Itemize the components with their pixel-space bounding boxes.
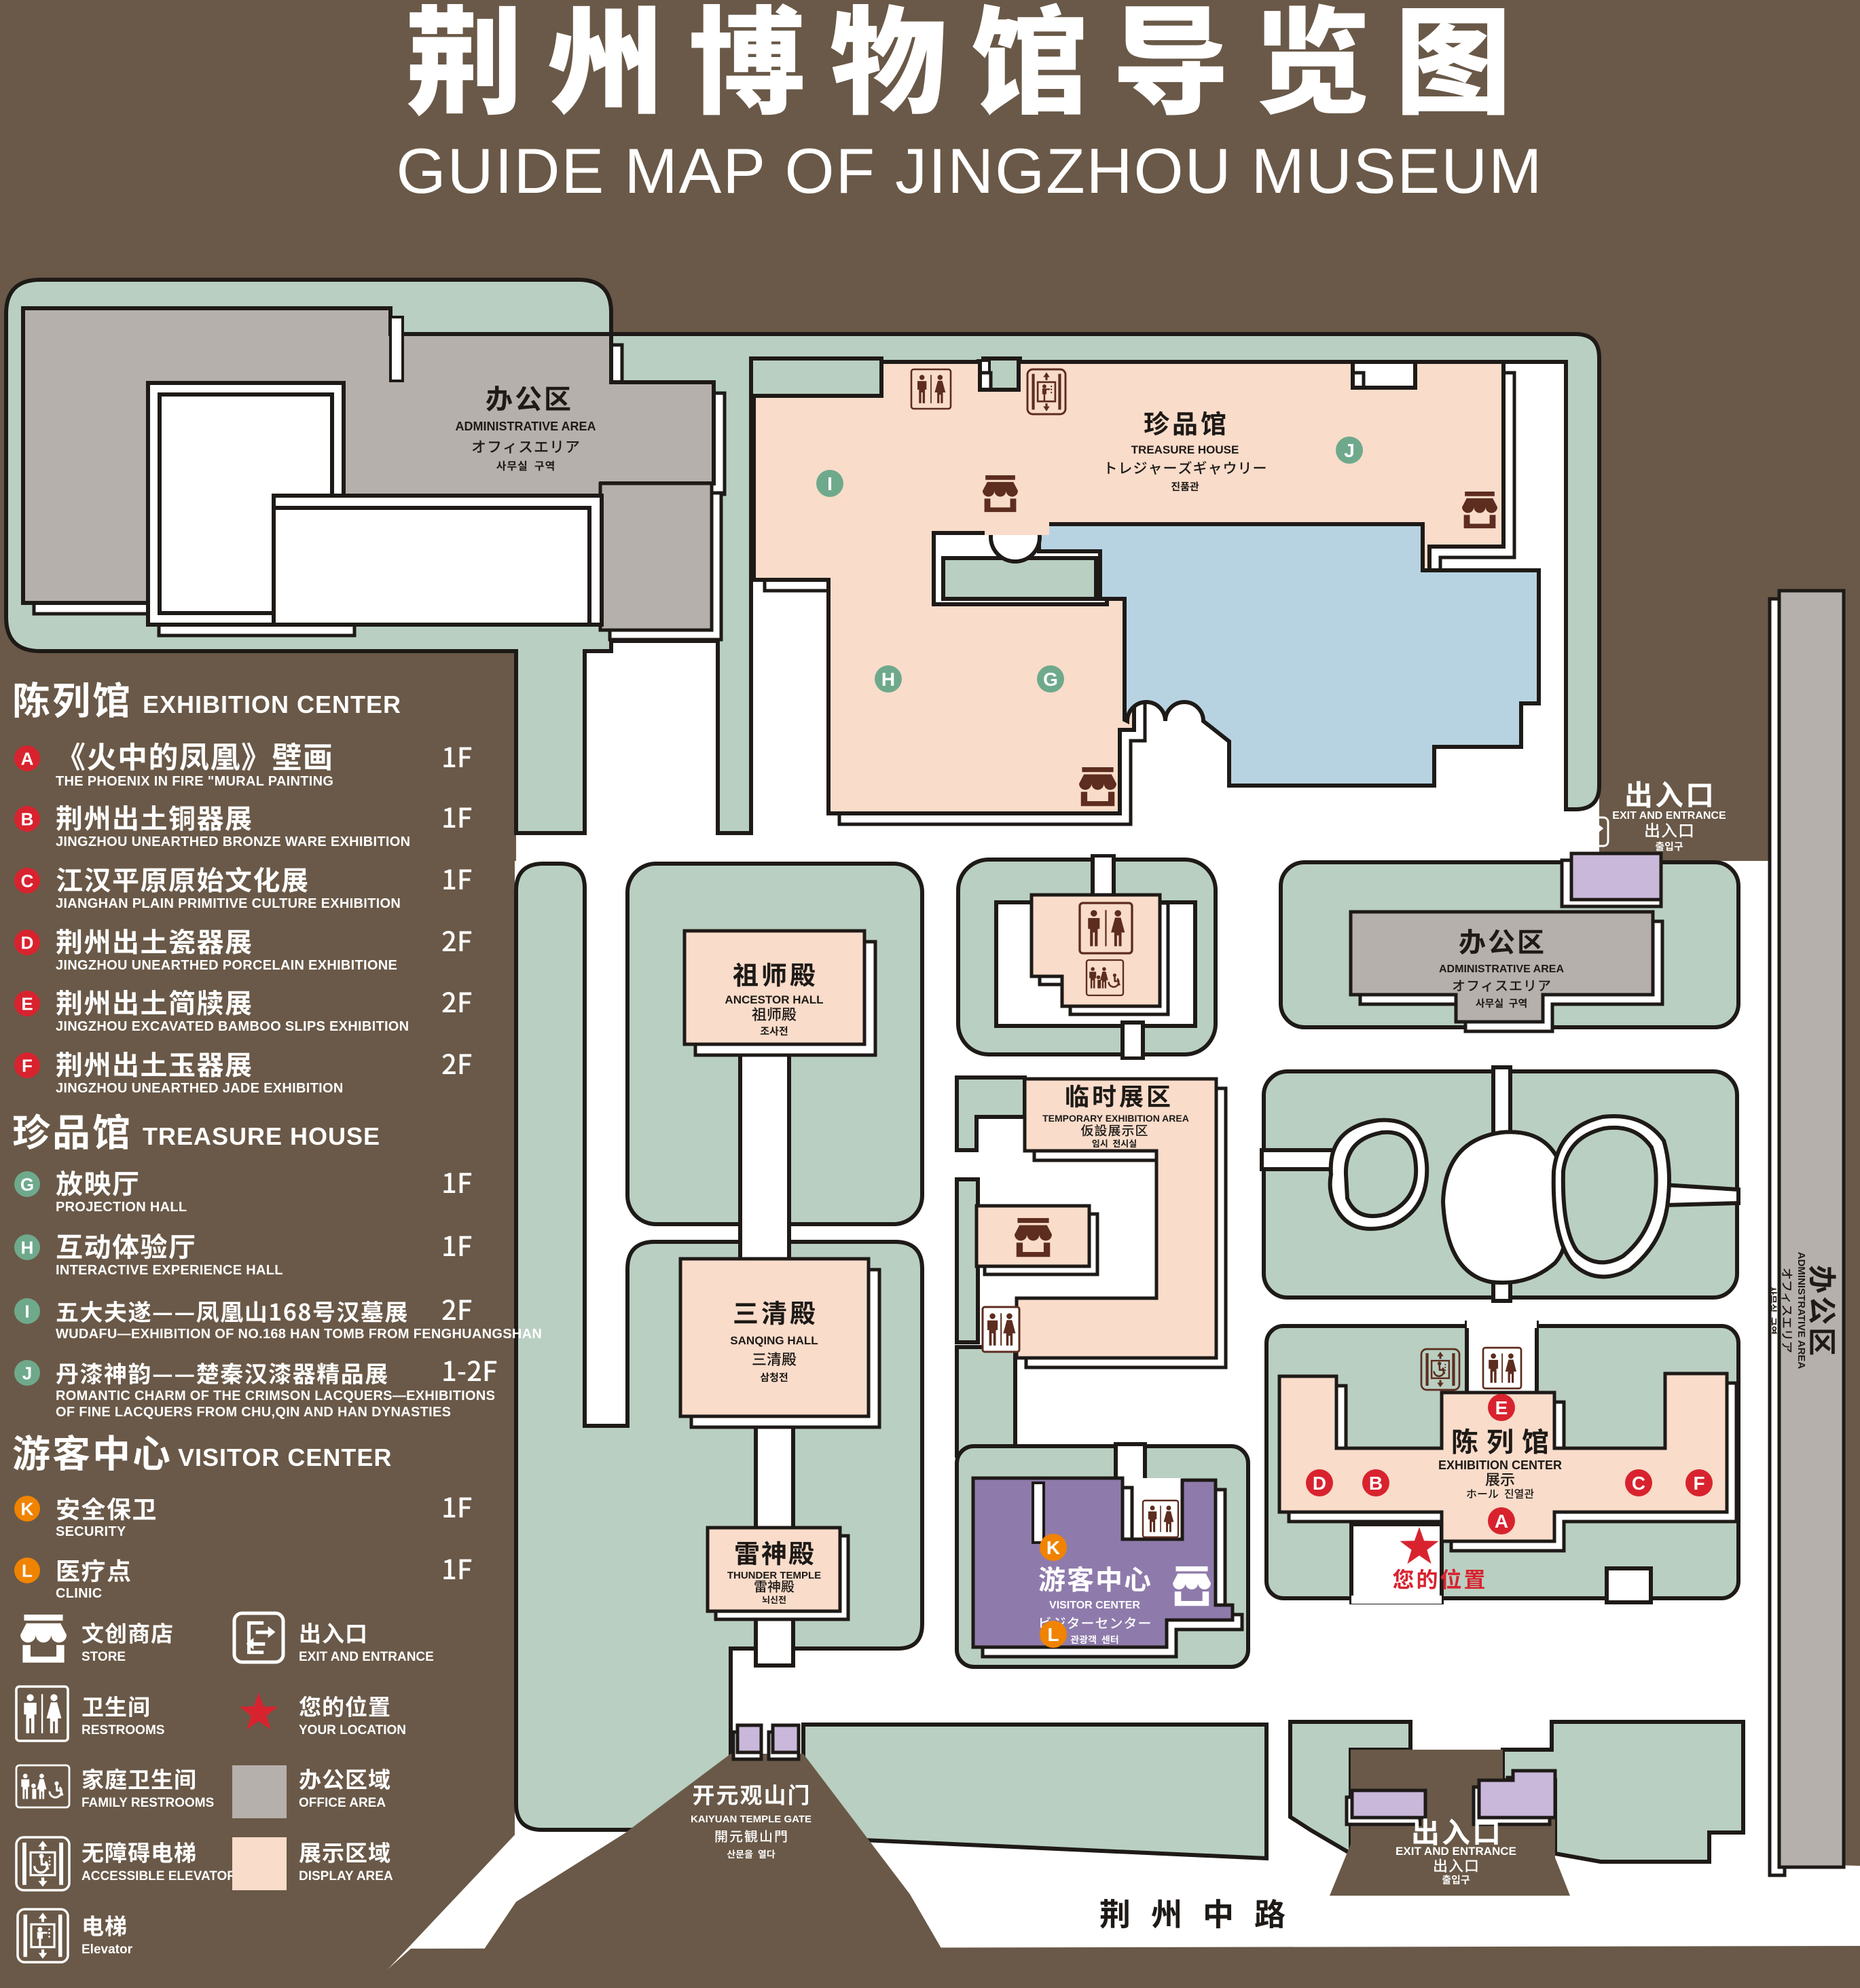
svg-text:ACCESSIBLE ELEVATOR: ACCESSIBLE ELEVATOR [81,1869,236,1883]
svg-text:TREASURE HOUSE: TREASURE HOUSE [1131,443,1239,456]
svg-text:ROMANTIC CHARM OF THE CRIMSON: ROMANTIC CHARM OF THE CRIMSON LACQUERS—E… [56,1388,495,1403]
svg-text:STORE: STORE [81,1650,126,1664]
svg-text:E: E [21,993,33,1014]
svg-text:D: D [1313,1473,1326,1494]
svg-text:D: D [21,932,34,953]
svg-text:OFFICE AREA: OFFICE AREA [299,1796,386,1810]
svg-text:K: K [21,1498,34,1519]
svg-text:C: C [21,870,34,891]
svg-text:TREASURE HOUSE: TREASURE HOUSE [143,1122,380,1150]
svg-text:KAIYUAN TEMPLE GATE: KAIYUAN TEMPLE GATE [691,1814,812,1825]
svg-text:H: H [881,669,895,690]
svg-text:VISITOR CENTER: VISITOR CENTER [178,1443,392,1471]
svg-text:F: F [22,1055,33,1075]
svg-text:PROJECTION HALL: PROJECTION HALL [56,1200,187,1215]
svg-text:K: K [1046,1537,1060,1558]
svg-text:ADMINISTRATIVE AREA: ADMINISTRATIVE AREA [1439,963,1564,975]
svg-text:EXHIBITION CENTER: EXHIBITION CENTER [1438,1458,1562,1472]
svg-text:A: A [1495,1511,1508,1532]
svg-text:THUNDER TEMPLE: THUNDER TEMPLE [727,1570,821,1581]
svg-text:EXIT AND ENTRANCE: EXIT AND ENTRANCE [1612,810,1726,822]
svg-text:FAMILY RESTROOMS: FAMILY RESTROOMS [81,1796,214,1810]
svg-text:ANCESTOR HALL: ANCESTOR HALL [725,993,823,1006]
svg-text:E: E [1495,1397,1508,1418]
svg-text:C: C [1632,1473,1645,1494]
svg-text:ADMINISTRATIVE AREA: ADMINISTRATIVE AREA [1795,1252,1807,1369]
svg-text:EXIT AND ENTRANCE: EXIT AND ENTRANCE [1396,1845,1516,1858]
svg-text:H: H [21,1237,34,1257]
svg-text:EXIT AND ENTRANCE: EXIT AND ENTRANCE [299,1650,434,1664]
svg-text:JINGZHOU UNEARTHED PORCELAIN E: JINGZHOU UNEARTHED PORCELAIN EXHIBITIONE [56,958,397,973]
svg-text:INTERACTIVE EXPERIENCE HALL: INTERACTIVE EXPERIENCE HALL [56,1263,283,1278]
svg-text:Elevator: Elevator [81,1943,133,1957]
svg-text:JIANGHAN PLAIN PRIMITIVE CULTU: JIANGHAN PLAIN PRIMITIVE CULTURE EXHIBIT… [56,896,401,911]
svg-text:B: B [1369,1473,1383,1494]
svg-text:SANQING HALL: SANQING HALL [730,1334,818,1347]
svg-text:ADMINISTRATIVE AREA: ADMINISTRATIVE AREA [456,420,596,433]
svg-text:J: J [22,1363,32,1383]
svg-text:I: I [24,1301,29,1321]
svg-text:G: G [20,1174,34,1194]
svg-text:I: I [827,473,833,494]
svg-text:JINGZHOU UNEARTHED BRONZE WARE: JINGZHOU UNEARTHED BRONZE WARE EXHIBITIO… [56,834,410,849]
svg-text:A: A [21,748,34,769]
svg-text:B: B [21,809,34,829]
svg-text:L: L [22,1560,33,1581]
svg-text:F: F [1693,1473,1704,1494]
svg-text:RESTROOMS: RESTROOMS [81,1723,164,1737]
svg-text:CLINIC: CLINIC [56,1586,102,1601]
svg-text:THE PHOENIX IN FIRE "MURAL PAI: THE PHOENIX IN FIRE "MURAL PAINTING [56,774,333,789]
svg-text:GUIDE MAP OF JINGZHOU MUSEUM: GUIDE MAP OF JINGZHOU MUSEUM [397,135,1544,206]
svg-text:JINGZHOU EXCAVATED BAMBOO SLIP: JINGZHOU EXCAVATED BAMBOO SLIPS EXHIBITI… [56,1019,409,1034]
svg-text:WUDAFU—EXHIBITION OF NO.168 HA: WUDAFU—EXHIBITION OF NO.168 HAN TOMB FRO… [56,1327,542,1342]
svg-text:EXHIBITION CENTER: EXHIBITION CENTER [143,691,401,718]
svg-text:JINGZHOU UNEARTHED JADE EXHIBI: JINGZHOU UNEARTHED JADE EXHIBITION [56,1081,344,1096]
svg-text:SECURITY: SECURITY [56,1524,126,1539]
svg-text:L: L [1047,1624,1059,1645]
svg-text:YOUR LOCATION: YOUR LOCATION [299,1723,406,1737]
svg-text:TEMPORARY EXHIBITION AREA: TEMPORARY EXHIBITION AREA [1042,1113,1189,1124]
svg-text:VISITOR CENTER: VISITOR CENTER [1049,1600,1140,1611]
svg-text:J: J [1344,440,1355,461]
svg-text:OF FINE LACQUERS FROM CHU,QIN: OF FINE LACQUERS FROM CHU,QIN AND HAN DY… [56,1405,451,1420]
svg-text:DISPLAY AREA: DISPLAY AREA [299,1869,393,1883]
svg-text:G: G [1043,669,1058,690]
